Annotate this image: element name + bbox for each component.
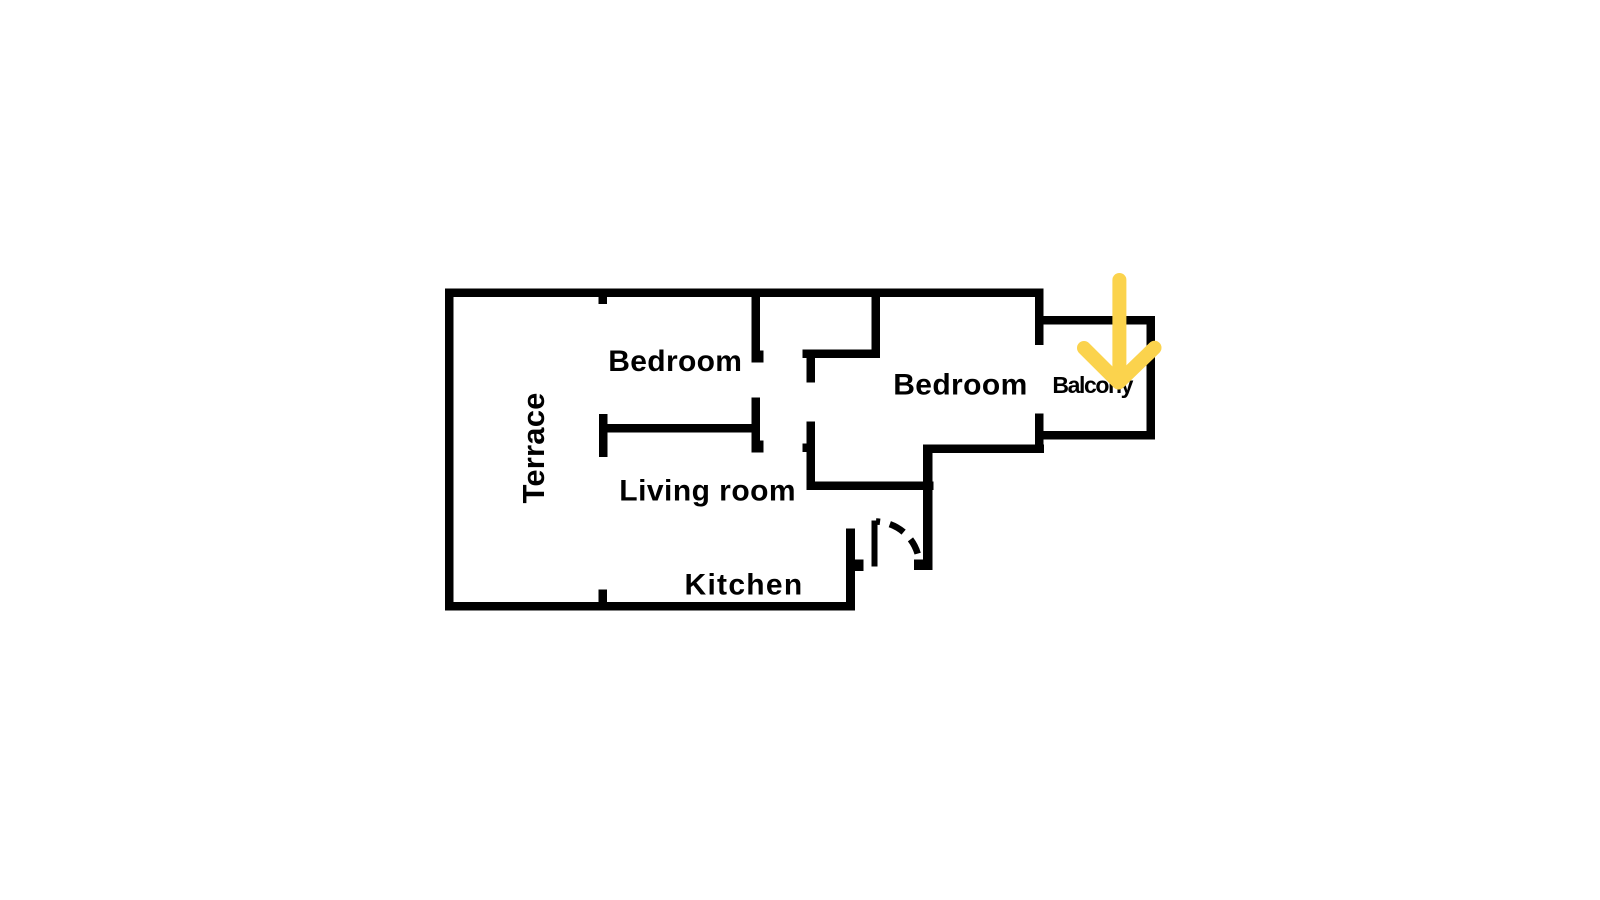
svg-text:Bedroom: Bedroom	[893, 369, 1027, 402]
svg-text:Kitchen: Kitchen	[685, 568, 804, 601]
svg-text:Terrace: Terrace	[516, 392, 551, 503]
svg-text:Bedroom: Bedroom	[608, 345, 742, 378]
svg-text:Living room: Living room	[619, 475, 796, 508]
